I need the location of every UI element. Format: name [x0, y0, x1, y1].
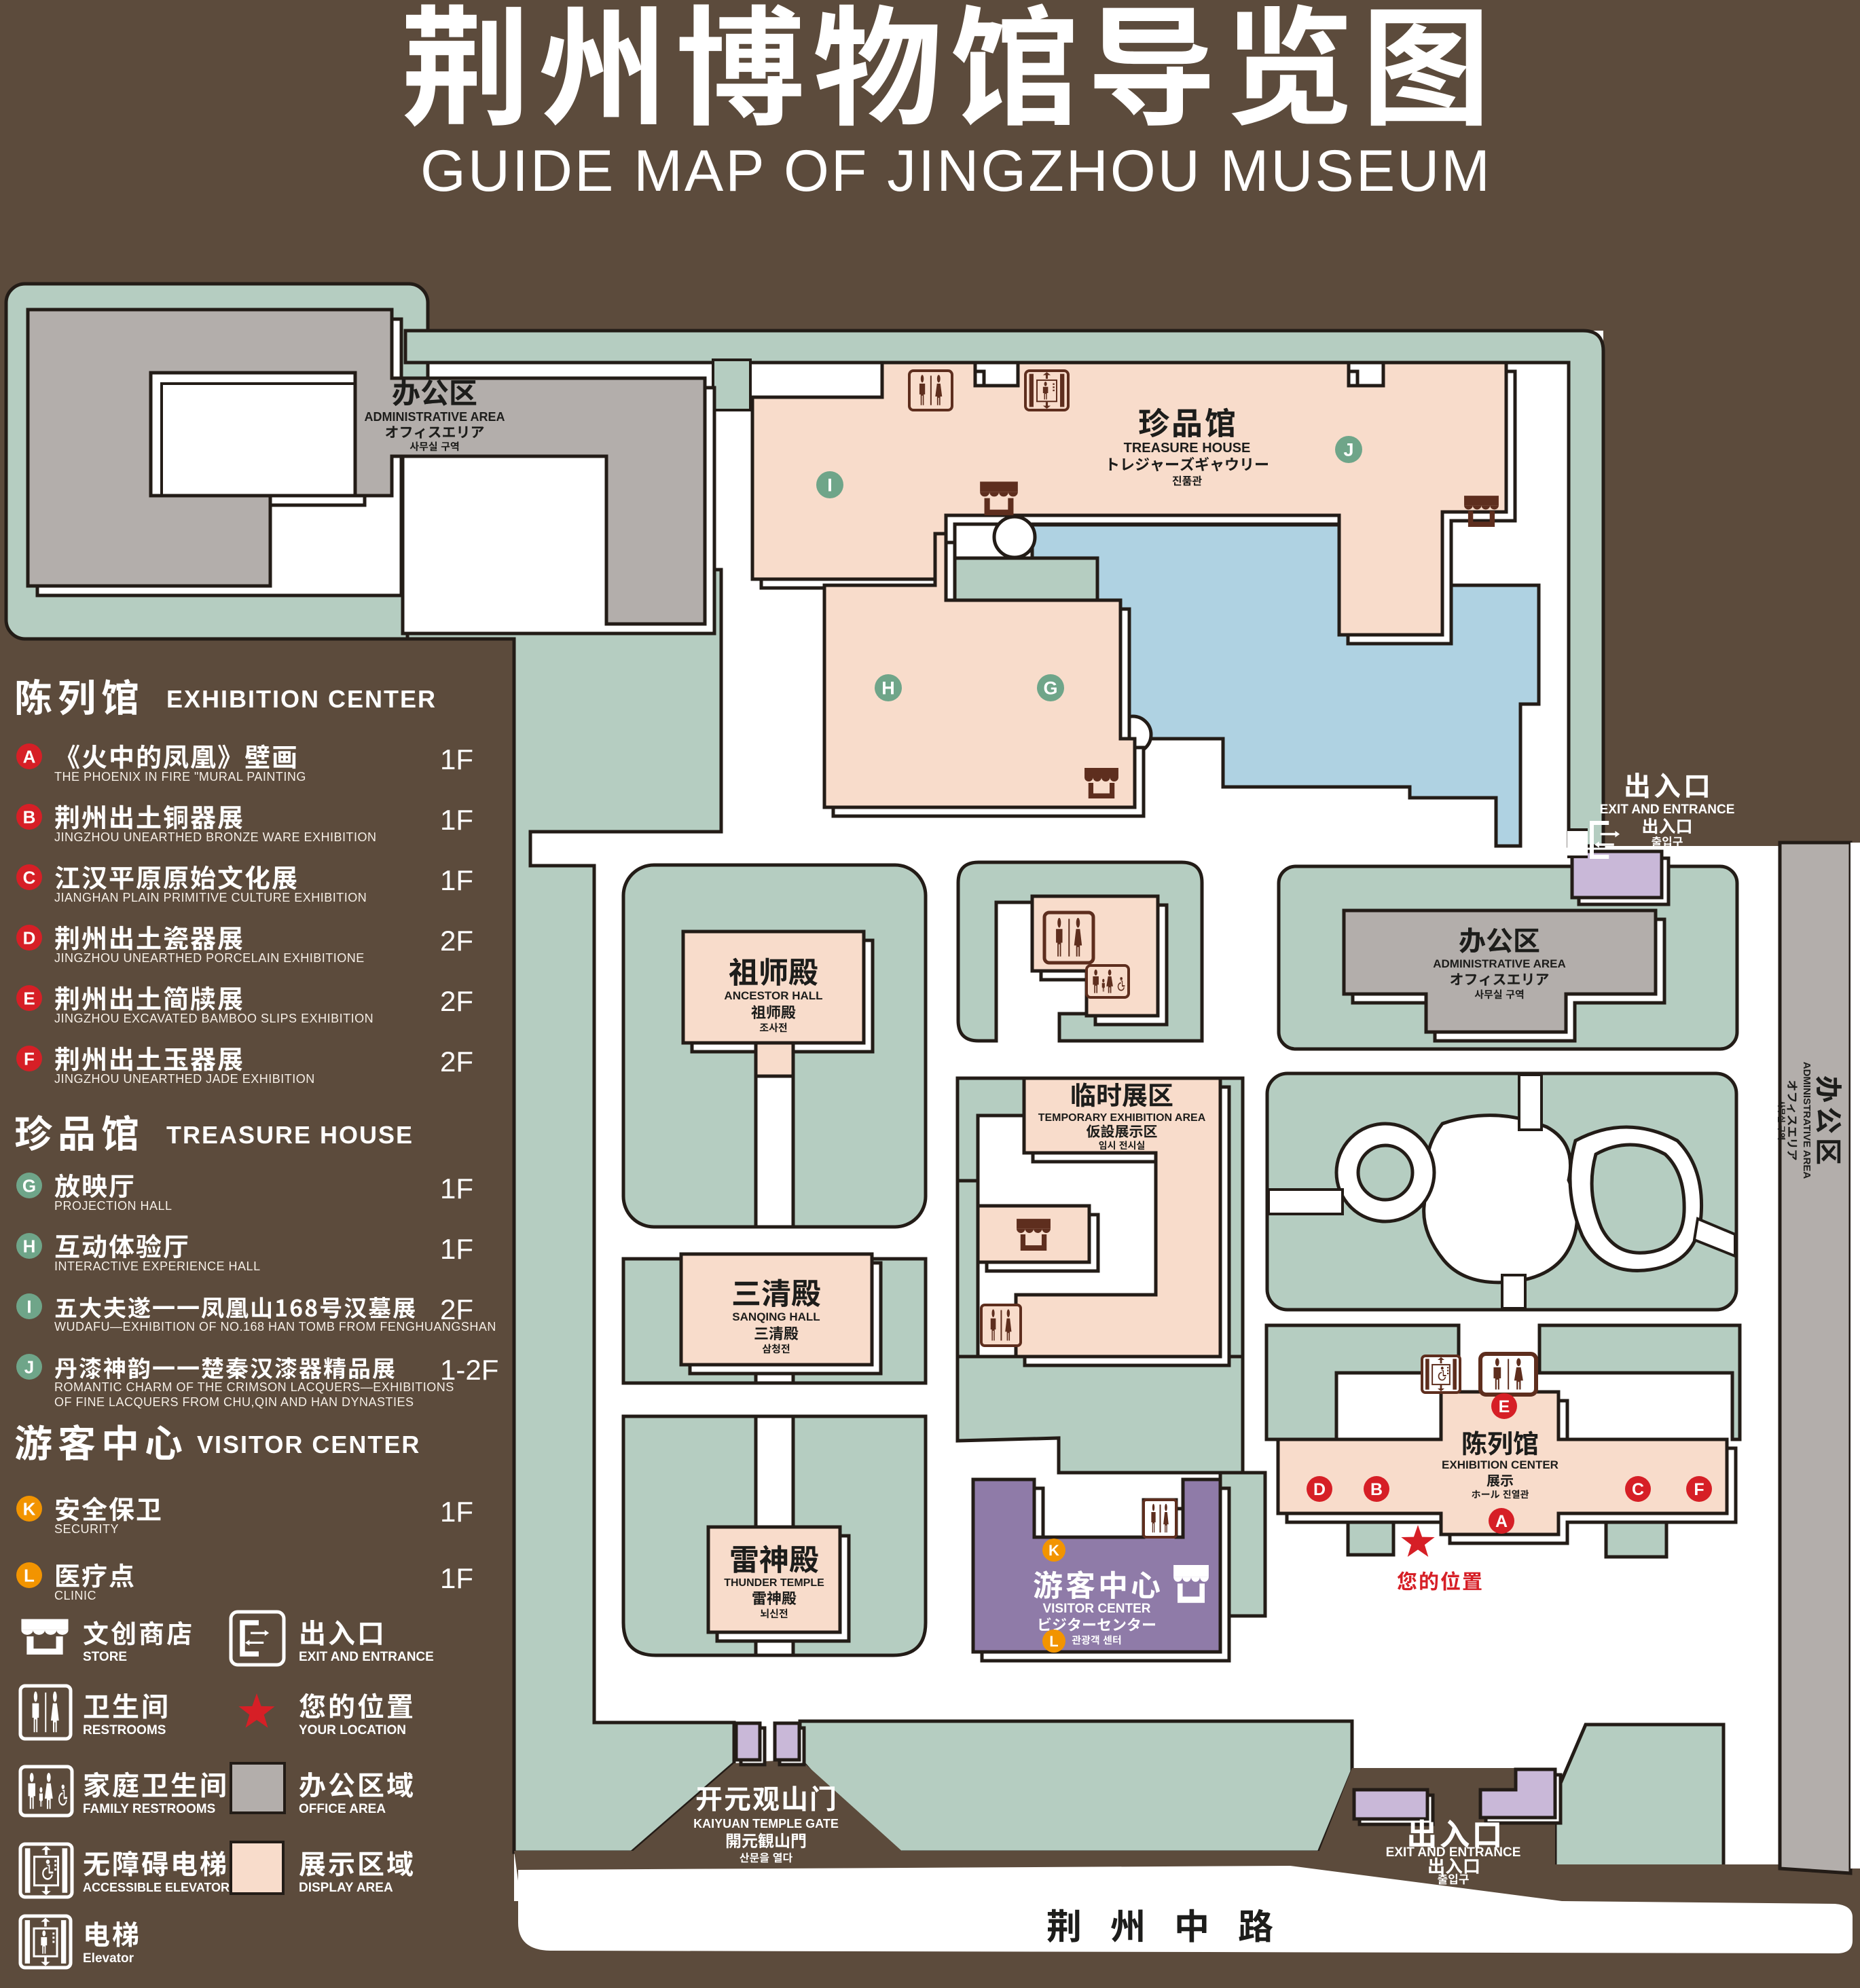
svg-text:EXIT AND ENTRANCE: EXIT AND ENTRANCE — [1600, 803, 1735, 817]
svg-text:FAMILY RESTROOMS: FAMILY RESTROOMS — [83, 1802, 215, 1816]
svg-text:PROJECTION HALL: PROJECTION HALL — [54, 1199, 172, 1213]
svg-text:L: L — [24, 1565, 35, 1585]
svg-text:SECURITY: SECURITY — [54, 1522, 119, 1536]
svg-text:JINGZHOU EXCAVATED BAMBOO SLIP: JINGZHOU EXCAVATED BAMBOO SLIPS EXHIBITI… — [54, 1012, 373, 1025]
svg-text:1F: 1F — [440, 743, 473, 775]
svg-text:1F: 1F — [440, 1233, 473, 1265]
svg-text:1F: 1F — [440, 1173, 473, 1204]
svg-text:JIANGHAN PLAIN PRIMITIVE CULTU: JIANGHAN PLAIN PRIMITIVE CULTURE EXHIBIT… — [54, 891, 367, 904]
svg-text:C: C — [23, 867, 36, 887]
svg-text:1F: 1F — [440, 1496, 473, 1528]
svg-text:TREASURE HOUSE: TREASURE HOUSE — [166, 1121, 414, 1149]
svg-text:EXIT AND ENTRANCE: EXIT AND ENTRANCE — [1386, 1845, 1521, 1860]
svg-text:A: A — [1495, 1512, 1508, 1531]
svg-text:YOUR LOCATION: YOUR LOCATION — [299, 1723, 406, 1737]
svg-text:INTERACTIVE EXPERIENCE HALL: INTERACTIVE EXPERIENCE HALL — [54, 1259, 261, 1273]
svg-text:THE PHOENIX IN FIRE "MURAL PAI: THE PHOENIX IN FIRE "MURAL PAINTING — [54, 770, 306, 784]
svg-text:RESTROOMS: RESTROOMS — [83, 1723, 166, 1737]
svg-text:ROMANTIC CHARM OF THE CRIMSON: ROMANTIC CHARM OF THE CRIMSON LACQUERS—E… — [54, 1380, 454, 1394]
svg-text:GUIDE MAP OF JINGZHOU MUSEUM: GUIDE MAP OF JINGZHOU MUSEUM — [420, 139, 1492, 204]
svg-text:THUNDER TEMPLE: THUNDER TEMPLE — [724, 1577, 824, 1589]
svg-text:ADMINISTRATIVE AREA: ADMINISTRATIVE AREA — [365, 410, 505, 424]
svg-text:1-2F: 1-2F — [440, 1354, 498, 1386]
svg-text:OF FINE LACQUERS FROM CHU,QIN: OF FINE LACQUERS FROM CHU,QIN AND HAN DY… — [54, 1395, 414, 1409]
svg-text:2F: 2F — [440, 1046, 473, 1078]
svg-text:C: C — [1632, 1480, 1644, 1499]
svg-text:TREASURE HOUSE: TREASURE HOUSE — [1124, 441, 1251, 456]
svg-text:ADMINISTRATIVE AREA: ADMINISTRATIVE AREA — [1433, 957, 1566, 970]
svg-text:2F: 2F — [440, 1293, 473, 1325]
svg-text:A: A — [23, 746, 36, 767]
svg-text:DISPLAY AREA: DISPLAY AREA — [299, 1881, 393, 1895]
svg-text:EXHIBITION CENTER: EXHIBITION CENTER — [1442, 1458, 1558, 1471]
svg-text:F: F — [24, 1048, 35, 1069]
svg-text:F: F — [1694, 1480, 1704, 1499]
svg-text:VISITOR CENTER: VISITOR CENTER — [197, 1431, 420, 1458]
svg-text:2F: 2F — [440, 985, 473, 1017]
svg-text:Elevator: Elevator — [83, 1951, 134, 1966]
svg-text:JINGZHOU UNEARTHED BRONZE WARE: JINGZHOU UNEARTHED BRONZE WARE EXHIBITIO… — [54, 830, 377, 844]
svg-text:VISITOR CENTER: VISITOR CENTER — [1042, 1602, 1150, 1616]
svg-text:I: I — [827, 475, 833, 496]
svg-text:EXHIBITION CENTER: EXHIBITION CENTER — [166, 685, 437, 713]
svg-text:D: D — [1313, 1480, 1326, 1499]
svg-text:ANCESTOR HALL: ANCESTOR HALL — [724, 989, 822, 1002]
svg-text:E: E — [23, 988, 35, 1008]
svg-text:1F: 1F — [440, 1562, 473, 1594]
svg-text:H: H — [23, 1236, 36, 1256]
svg-text:K: K — [1048, 1542, 1059, 1559]
svg-text:SANQING HALL: SANQING HALL — [732, 1310, 820, 1323]
svg-text:J: J — [24, 1357, 34, 1377]
svg-text:1F: 1F — [440, 804, 473, 836]
svg-text:TEMPORARY EXHIBITION AREA: TEMPORARY EXHIBITION AREA — [1038, 1112, 1206, 1124]
svg-text:D: D — [23, 927, 36, 948]
svg-text:L: L — [1049, 1633, 1058, 1650]
svg-text:WUDAFU—EXHIBITION OF NO.168 HA: WUDAFU—EXHIBITION OF NO.168 HAN TOMB FRO… — [54, 1320, 496, 1333]
svg-text:E: E — [1499, 1397, 1510, 1416]
svg-text:H: H — [881, 678, 895, 699]
svg-text:J: J — [1343, 440, 1353, 460]
svg-text:B: B — [1370, 1480, 1383, 1499]
svg-text:1F: 1F — [440, 864, 473, 896]
svg-text:OFFICE AREA: OFFICE AREA — [299, 1802, 386, 1816]
svg-text:2F: 2F — [440, 925, 473, 957]
svg-text:JINGZHOU UNEARTHED PORCELAIN E: JINGZHOU UNEARTHED PORCELAIN EXHIBITIONE — [54, 951, 365, 965]
svg-text:K: K — [23, 1498, 36, 1519]
svg-text:EXIT AND ENTRANCE: EXIT AND ENTRANCE — [299, 1650, 434, 1664]
svg-text:ADMINISTRATIVE AREA: ADMINISTRATIVE AREA — [1801, 1062, 1812, 1179]
svg-text:CLINIC: CLINIC — [54, 1589, 96, 1602]
svg-text:G: G — [22, 1175, 36, 1196]
svg-text:G: G — [1043, 678, 1057, 699]
svg-text:B: B — [23, 807, 36, 827]
svg-text:KAIYUAN TEMPLE GATE: KAIYUAN TEMPLE GATE — [693, 1817, 839, 1830]
svg-text:STORE: STORE — [83, 1650, 127, 1664]
svg-text:ACCESSIBLE ELEVATOR: ACCESSIBLE ELEVATOR — [83, 1881, 230, 1894]
svg-text:I: I — [26, 1296, 31, 1317]
svg-text:JINGZHOU UNEARTHED JADE EXHIBI: JINGZHOU UNEARTHED JADE EXHIBITION — [54, 1072, 315, 1086]
